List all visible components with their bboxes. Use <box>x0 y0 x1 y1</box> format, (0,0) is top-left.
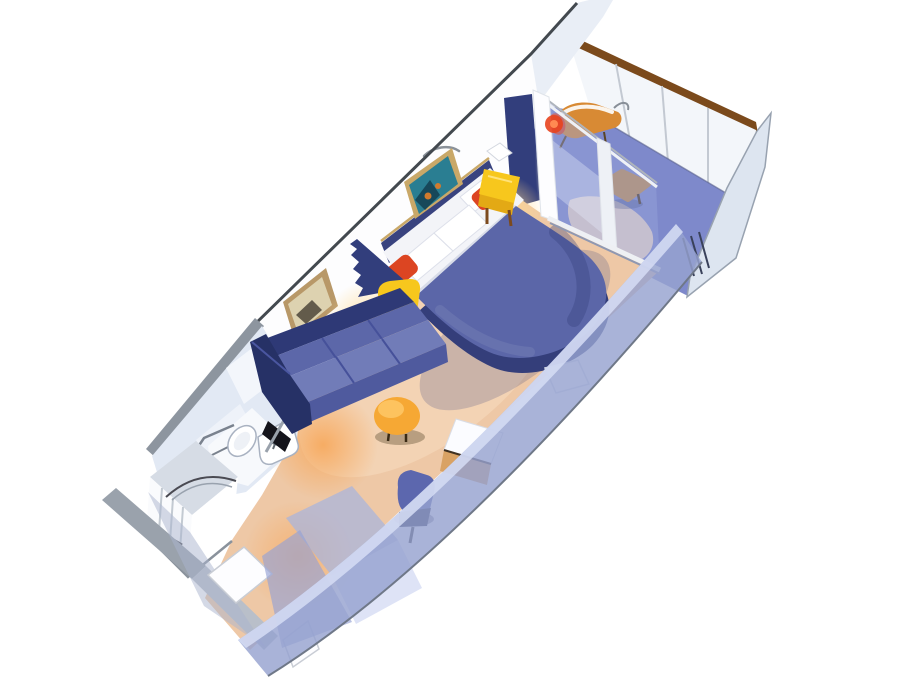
art-detail-dot <box>435 183 441 189</box>
ottoman-leg <box>388 433 389 441</box>
ottoman-highlight <box>378 400 404 418</box>
art-detail-dot <box>425 193 432 200</box>
stateroom-floorplan-image <box>0 0 900 700</box>
lens-flare-core <box>550 120 558 128</box>
nightstand-leg <box>509 210 511 226</box>
stateroom-scene <box>0 0 900 700</box>
